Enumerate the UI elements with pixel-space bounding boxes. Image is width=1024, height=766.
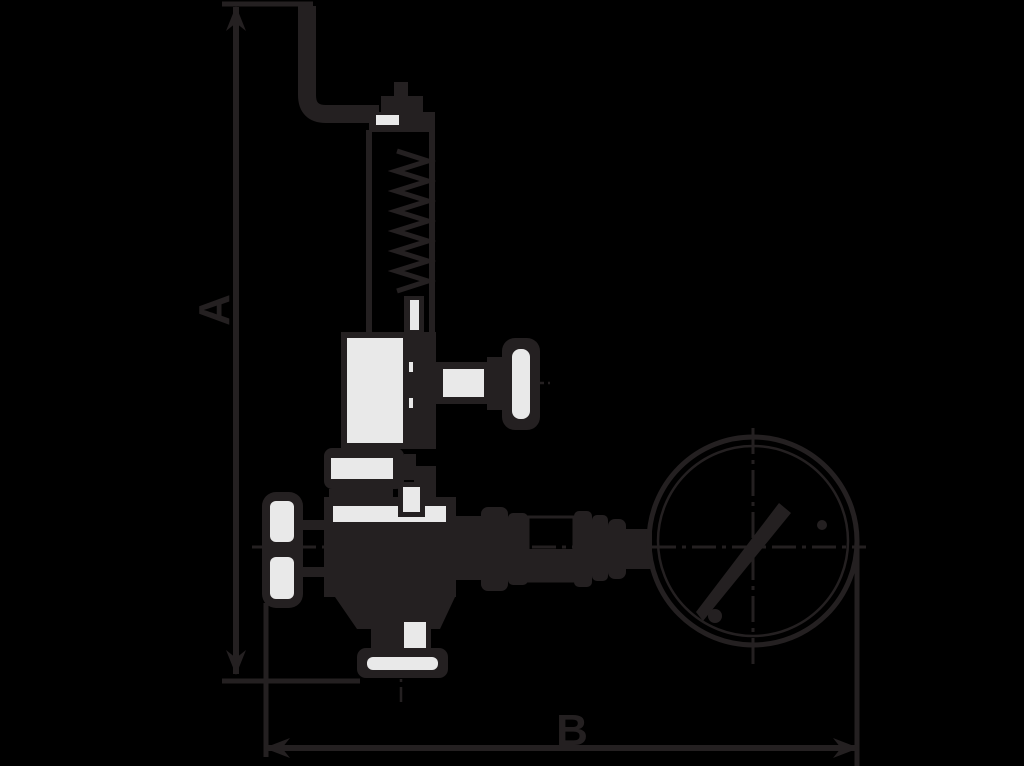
handwheel-slot-top <box>270 501 294 542</box>
knob-slot <box>512 349 530 419</box>
union-pipe-assembly <box>455 507 652 591</box>
union-nut-1 <box>481 507 508 591</box>
spring-stem-slot <box>410 300 419 330</box>
valve-technical-drawing: A B <box>0 0 1024 766</box>
union-ring-1 <box>508 513 528 585</box>
bonnet-tick-2 <box>409 398 413 408</box>
knob-shaft-slot <box>443 369 484 397</box>
spring-coil <box>396 151 428 291</box>
dim-a-label: A <box>190 294 239 326</box>
pipe-body-shading <box>528 549 574 581</box>
union-nut-2 <box>574 511 592 587</box>
flange-lower-band <box>329 489 393 497</box>
bonnet-tick-1 <box>409 362 413 372</box>
body-light-band <box>333 506 446 522</box>
test-knob <box>436 338 540 430</box>
handwheel-shaft-top <box>303 520 325 530</box>
bonnet-right-mass <box>409 332 436 449</box>
pipe-connector-block <box>455 516 483 580</box>
handwheel-shaft-bottom <box>303 567 325 577</box>
outlet-stem-slot <box>404 622 426 648</box>
gauge-adapter <box>608 519 626 579</box>
body-taper <box>335 597 455 629</box>
yoke-rod-left <box>366 130 372 334</box>
flange-slot <box>331 458 393 479</box>
outlet-flange <box>357 648 448 678</box>
gauge-dot-right <box>817 520 827 530</box>
bonnet-window <box>347 338 403 443</box>
gauge-needle <box>696 503 791 621</box>
lever-pipe <box>307 6 379 114</box>
cap-window <box>376 115 399 125</box>
outlet-flange-slot <box>367 657 438 670</box>
bonnet-housing <box>341 332 436 449</box>
spring-yoke <box>366 130 435 334</box>
drawing-canvas: A B <box>0 0 1024 766</box>
cap-band-upper <box>381 96 423 112</box>
bent-discharge-lever <box>307 6 379 114</box>
dim-b-label: B <box>556 706 588 755</box>
gauge-dot-lower <box>708 609 722 623</box>
handwheel-slot-bottom <box>270 557 294 599</box>
cap-nub <box>394 82 408 97</box>
knob-plate <box>487 357 502 410</box>
union-ring-2 <box>592 515 608 581</box>
body-tee-slot <box>403 487 420 512</box>
handwheel <box>262 492 325 608</box>
valve-body <box>324 482 456 651</box>
